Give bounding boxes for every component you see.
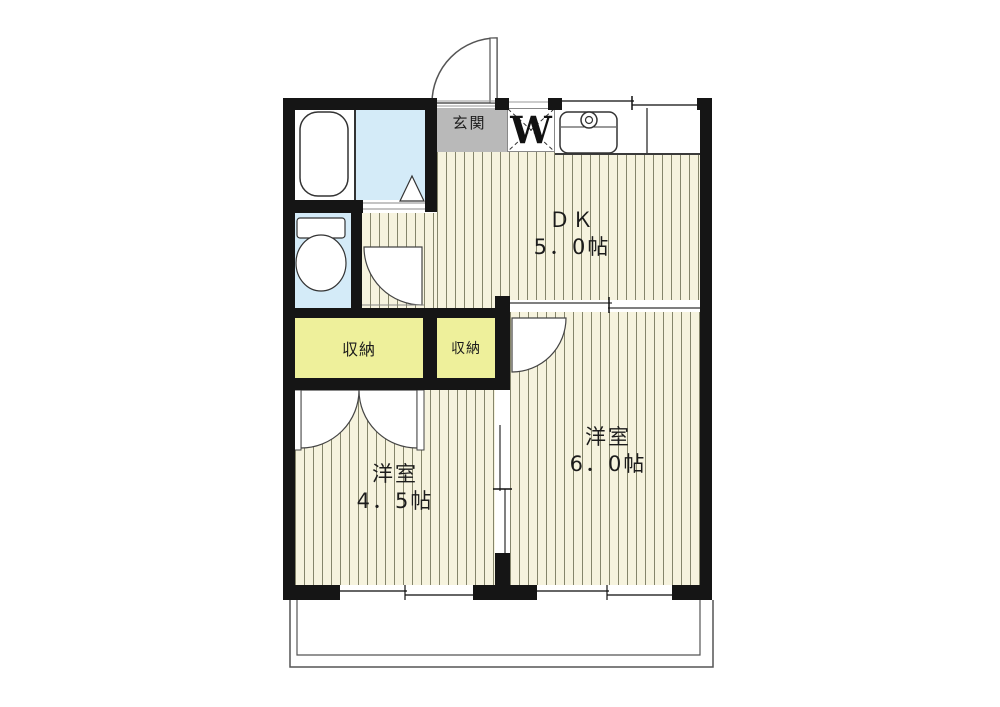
wall-room-divider-top <box>495 296 510 390</box>
western6-room-label: 洋室 6．0帖 <box>528 424 688 478</box>
wall-top-left <box>283 98 432 110</box>
laundry-label: W <box>507 108 555 152</box>
closet-right-label: 収納 <box>437 318 495 378</box>
dk-room-size: 5．0帖 <box>492 234 652 261</box>
entrance-label: 玄関 <box>432 112 507 133</box>
wall-left <box>283 98 295 600</box>
wall-toilet-right <box>351 212 362 312</box>
dk-partition-track <box>510 300 700 312</box>
bathroom-threshold <box>361 203 425 209</box>
western45-room-name: 洋室 <box>315 461 475 488</box>
closet-left-label: 収納 <box>295 318 423 378</box>
closet-door-leaf-right <box>417 390 424 450</box>
wall-right <box>700 98 712 600</box>
entry-door-swing <box>432 38 497 103</box>
floor-plan: 玄関 W ＤＫ 5．0帖 洋室 6．0帖 洋室 4．5帖 収納 収納 <box>0 0 1000 707</box>
western45-room-label: 洋室 4．5帖 <box>315 461 475 515</box>
window-6-bg <box>537 586 672 600</box>
western6-room-name: 洋室 <box>528 424 688 451</box>
western6-room-size: 6．0帖 <box>528 451 688 478</box>
wall-room-divider-bottom <box>495 553 510 600</box>
dk-room-label: ＤＫ 5．0帖 <box>492 207 652 261</box>
hall-door-swing <box>364 247 422 305</box>
balcony-inner <box>297 600 700 655</box>
closet-door-swing-right <box>359 390 417 448</box>
toilet-bowl <box>296 235 346 291</box>
balcony-outer <box>290 600 713 667</box>
closet-door-leaf-left <box>294 390 301 450</box>
closet-door-swing-left <box>301 390 359 448</box>
western6-door-swing <box>512 318 566 372</box>
bathroom-door-mark <box>400 176 424 201</box>
bathtub <box>300 112 348 196</box>
entry-door-leaf <box>490 38 497 103</box>
wall-closet-bottom-left <box>283 378 437 390</box>
window-45-bg <box>340 586 473 600</box>
western45-room-size: 4．5帖 <box>315 488 475 515</box>
dk-room-name: ＤＫ <box>492 207 652 234</box>
wall-bottom-3 <box>672 585 712 600</box>
wall-mid-band <box>283 308 510 318</box>
faucet-inner-icon <box>586 117 593 124</box>
wall-bottom-1 <box>283 585 340 600</box>
